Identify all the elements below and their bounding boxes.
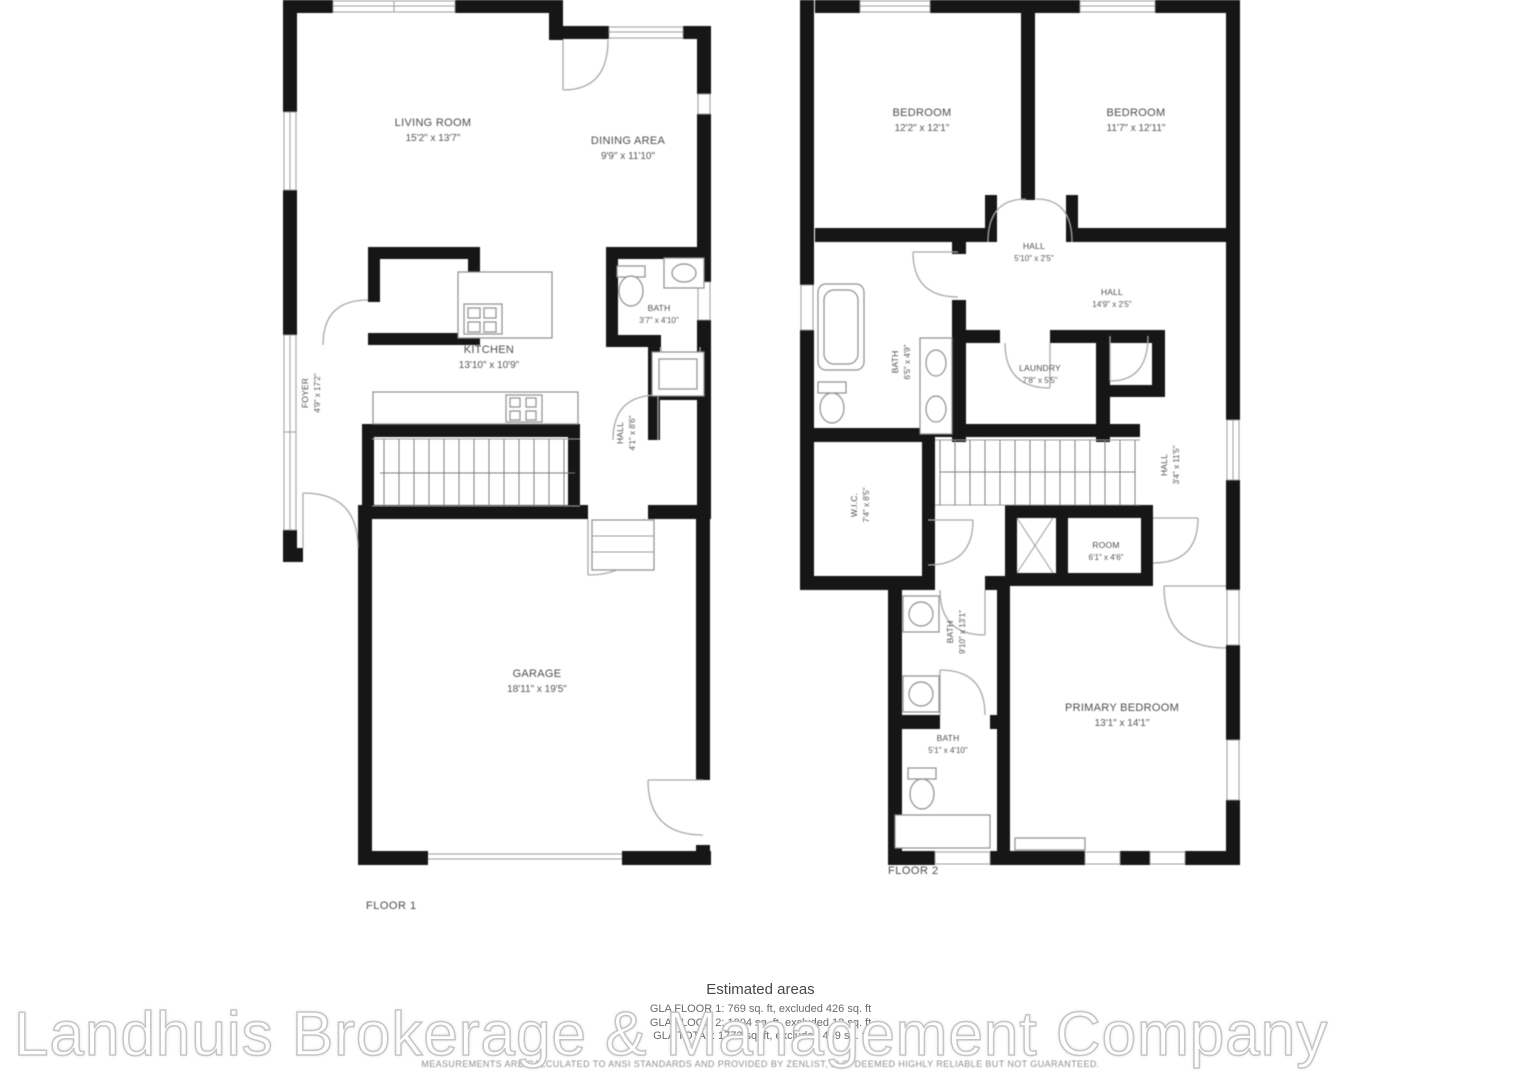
- floor1-caption: FLOOR 1: [366, 900, 417, 912]
- room-label-dining: DINING AREA: [591, 135, 666, 147]
- room-label-hall1: HALL: [615, 422, 625, 444]
- room-dims-bedroom-right: 11'7" x 12'11": [1107, 123, 1166, 134]
- room-dims-hall1: 4'1" x 8'6": [628, 415, 637, 450]
- room-dims-living: 15'2" x 13'7": [406, 133, 461, 144]
- room-dims-wic: 7'4" x 8'5": [862, 487, 871, 522]
- room-label-wic: W.I.C.: [849, 493, 859, 517]
- room-label-room: ROOM: [1092, 540, 1119, 550]
- room-dims-room: 6'1" x 4'6": [1089, 553, 1124, 562]
- room-label-bedroom-right: BEDROOM: [1107, 107, 1166, 119]
- room-dims-hall-upper: 5'10" x 2'5": [1014, 254, 1054, 263]
- room-dims-dining: 9'9" x 11'10": [601, 151, 656, 162]
- room-label-laundry: LAUNDRY: [1019, 363, 1061, 373]
- room-label-hall-upper: HALL: [1023, 241, 1045, 251]
- floor2-caption: FLOOR 2: [888, 865, 939, 877]
- floor2-walls: [800, 0, 1240, 865]
- room-label-garage: GARAGE: [513, 668, 562, 680]
- room-dims-bedroom-left: 12'2" x 12'1": [895, 123, 950, 134]
- room-dims-hall-right: 3'4" x 11'5": [1172, 445, 1181, 484]
- floor1-walls: [283, 0, 711, 865]
- floorplan-page: LIVING ROOM 15'2" x 13'7" DINING AREA 9'…: [0, 0, 1521, 1080]
- room-label-living: LIVING ROOM: [395, 117, 472, 129]
- room-dims-laundry: 7'8" x 5'5": [1023, 376, 1058, 385]
- room-label-foyer: FOYER: [300, 378, 310, 408]
- floor2-stairs: [935, 440, 1140, 505]
- room-label-bath-left: BATH: [890, 351, 900, 374]
- room-label-primary: PRIMARY BEDROOM: [1065, 702, 1179, 714]
- room-dims-bath-left: 6'5" x 4'9": [903, 344, 912, 379]
- floor1-plan: LIVING ROOM 15'2" x 13'7" DINING AREA 9'…: [283, 0, 711, 912]
- room-label-kitchen: KITCHEN: [464, 344, 514, 356]
- room-dims-hall-main: 14'9" x 2'5": [1092, 300, 1132, 309]
- room-dims-primary: 13'1" x 14'1": [1095, 718, 1150, 729]
- room-label-hall-main: HALL: [1101, 287, 1123, 297]
- room-label-bath1: BATH: [648, 303, 671, 313]
- room-dims-bath-lower: 5'1" x 4'10": [928, 746, 968, 755]
- floorplan-drawing: LIVING ROOM 15'2" x 13'7" DINING AREA 9'…: [0, 0, 1521, 1080]
- floor2-plan: BEDROOM 12'2" x 12'1" BEDROOM 11'7" x 12…: [800, 0, 1240, 877]
- floor1-stairs: [372, 439, 580, 506]
- room-dims-foyer: 4'9" x 17'2": [313, 373, 322, 413]
- room-label-bedroom-left: BEDROOM: [893, 107, 952, 119]
- estimated-areas-title: Estimated areas: [0, 981, 1521, 998]
- room-label-bath-middle: BATH: [945, 621, 955, 644]
- room-dims-bath1: 3'7" x 4'10": [639, 316, 679, 325]
- room-label-hall-right: HALL: [1159, 454, 1169, 476]
- watermark-text: Landhuis Brokerage & Management Company: [14, 999, 1521, 1070]
- room-dims-garage: 18'11" x 19'5": [507, 684, 567, 695]
- room-label-bath-lower: BATH: [937, 733, 960, 743]
- room-dims-bath-middle: 9'10" x 13'1": [958, 610, 967, 654]
- room-dims-kitchen: 13'10" x 10'9": [459, 360, 520, 371]
